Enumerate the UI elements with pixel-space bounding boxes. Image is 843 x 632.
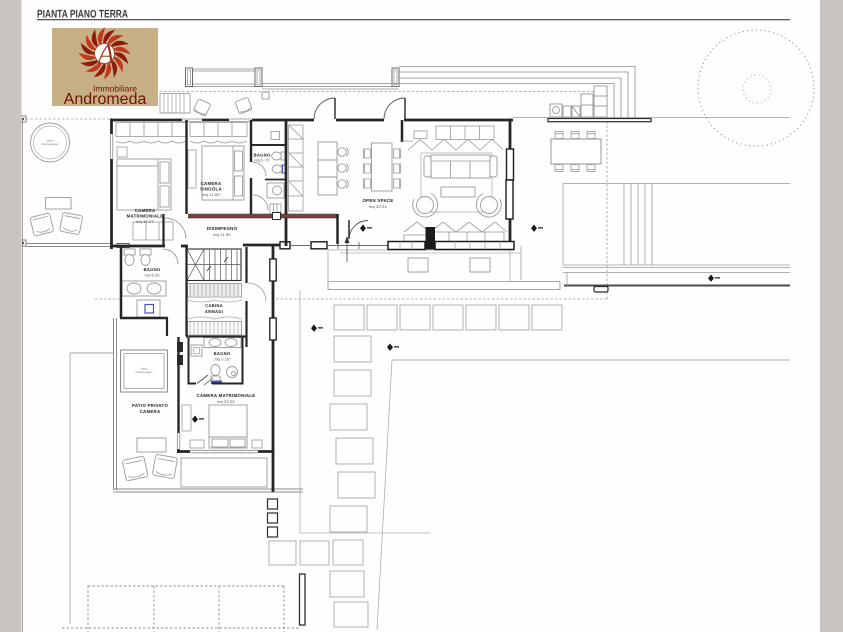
svg-text:mq 8.20: mq 8.20: [144, 274, 159, 278]
svg-text:mq 22.50: mq 22.50: [217, 399, 235, 404]
svg-text:idromassaggio: idromassaggio: [136, 371, 153, 374]
svg-text:mq 5.70: mq 5.70: [254, 159, 269, 163]
svg-text:mq 33.54: mq 33.54: [369, 204, 387, 209]
svg-text:mq 5.10: mq 5.10: [214, 358, 229, 362]
svg-text:CAMERA: CAMERA: [140, 409, 161, 414]
svg-text:CAMERA: CAMERA: [201, 181, 222, 186]
svg-text:SINGOLA: SINGOLA: [200, 187, 222, 192]
svg-text:BAGNO: BAGNO: [214, 351, 231, 356]
svg-text:mq 15.27: mq 15.27: [136, 219, 154, 224]
svg-text:CAMERA MATRIMONIALE: CAMERA MATRIMONIALE: [197, 393, 256, 398]
svg-text:CABINA: CABINA: [205, 303, 223, 308]
svg-text:BAGNO: BAGNO: [254, 153, 271, 158]
svg-text:CAMERA: CAMERA: [135, 208, 156, 213]
svg-text:ARMADI: ARMADI: [205, 309, 223, 314]
svg-text:OPEN SPACE: OPEN SPACE: [363, 198, 394, 203]
svg-text:mq 11.60: mq 11.60: [213, 232, 231, 237]
svg-text:PATIO PRIVATO: PATIO PRIVATO: [132, 403, 168, 408]
svg-text:MATRIMONIALE: MATRIMONIALE: [127, 214, 164, 219]
svg-text:PIANTA PIANO TERRA: PIANTA PIANO TERRA: [37, 9, 128, 21]
svg-text:DISIMPEGNO: DISIMPEGNO: [207, 226, 238, 231]
svg-text:idromassaggio: idromassaggio: [42, 143, 59, 146]
svg-text:mq 11.60: mq 11.60: [202, 192, 220, 197]
svg-text:BAGNO: BAGNO: [144, 267, 161, 272]
svg-text:Andromeda: Andromeda: [64, 91, 147, 108]
